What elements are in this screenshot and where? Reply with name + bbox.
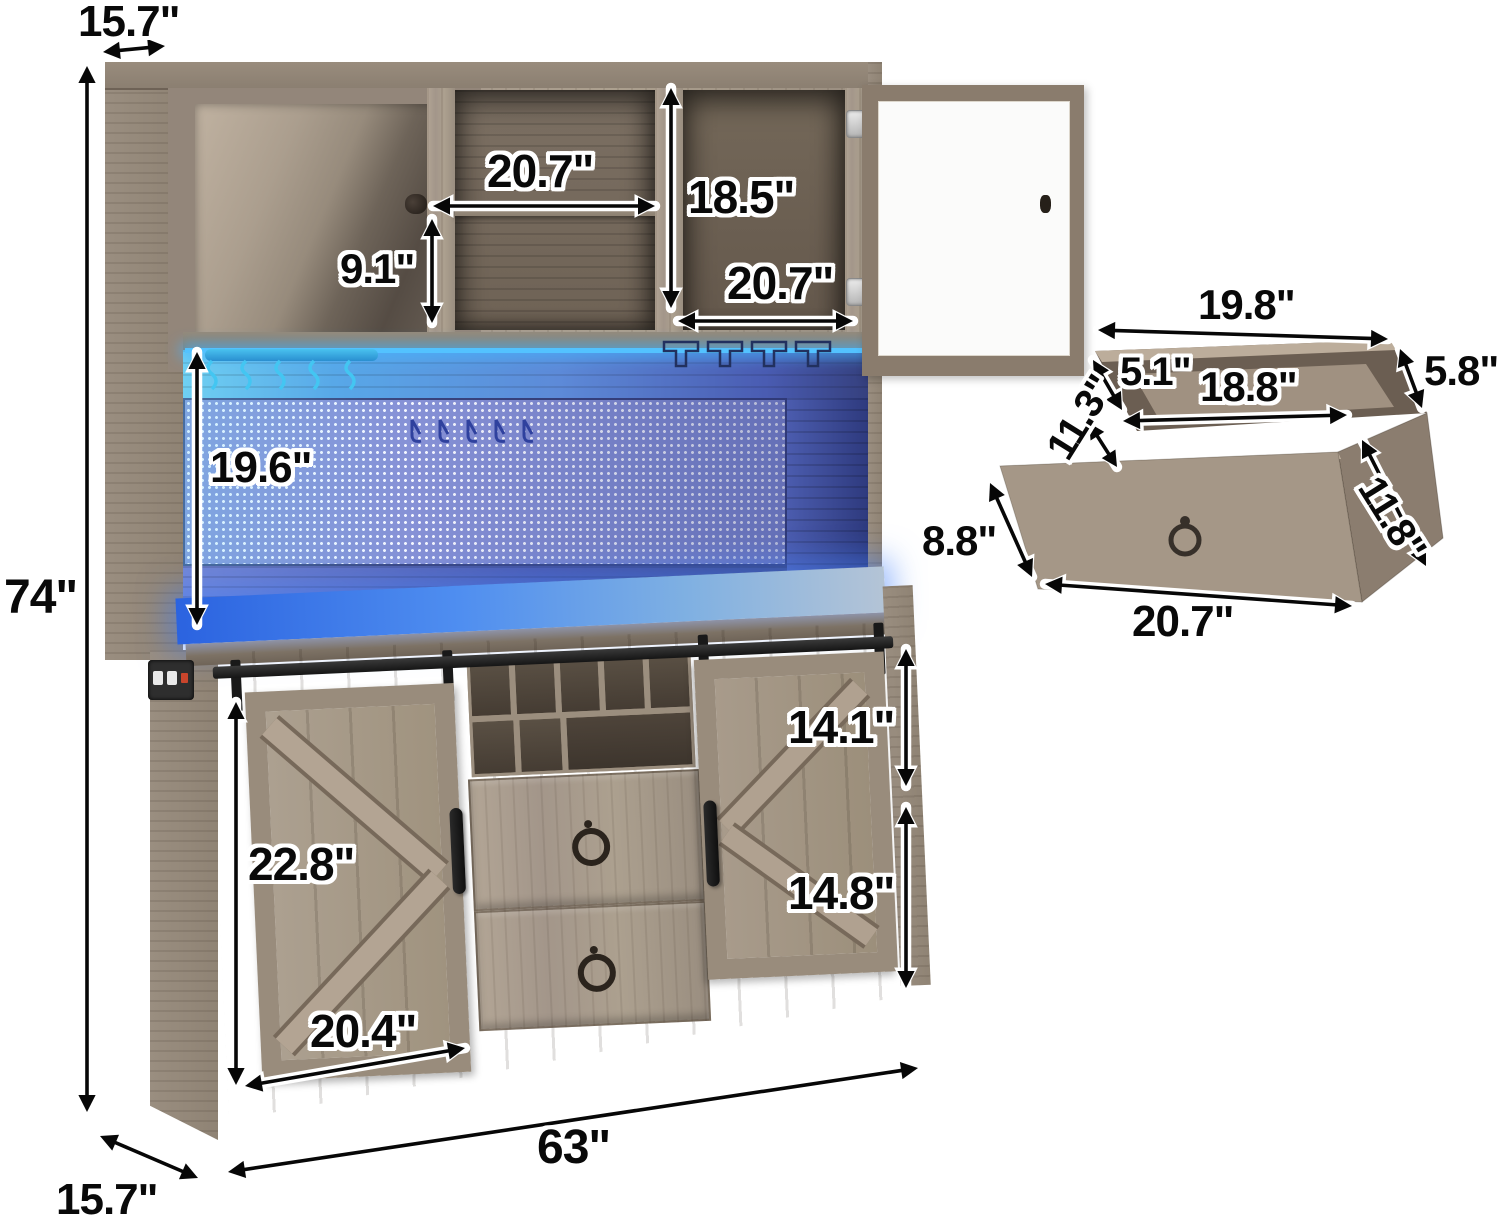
dim-label-right-cabinet-width: 20.7" — [727, 260, 833, 306]
dimension-arrow — [1098, 330, 1388, 339]
glass-door-knob — [405, 194, 427, 214]
dim-label-middle-shelf-width: 20.7" — [487, 148, 593, 194]
dimension-arrow — [78, 1095, 95, 1112]
dimension-arrow — [996, 496, 1027, 564]
dimension-arrow — [1121, 409, 1144, 433]
dim-label-upper-cabinet-height: 18.5" — [688, 174, 794, 220]
product-diagram-canvas: 15.7" 74" 20.7" 18.5" 9.1" 20.7" 19.6" 2… — [0, 0, 1500, 1220]
drawer-front-panel — [1000, 452, 1362, 602]
hutch-top-panel — [105, 62, 882, 90]
dimension-arrow — [1112, 330, 1374, 338]
dimension-arrow — [100, 1135, 119, 1151]
dimension-arrow — [1334, 596, 1352, 613]
drawer-inset-ring-pull — [1171, 526, 1199, 554]
dimension-arrow — [1017, 558, 1033, 577]
drawer-inset-ring-knob — [1180, 516, 1190, 526]
dimension-arrow — [1405, 362, 1417, 395]
dimension-arrow — [988, 481, 1010, 507]
dimension-arrow — [1362, 440, 1377, 459]
dim-label-height: 74" — [4, 574, 77, 622]
dimension-arrow — [75, 1092, 99, 1115]
dimension-arrow — [1123, 412, 1140, 429]
dim-label-base-depth: 15.7" — [56, 1178, 158, 1220]
dimension-arrow — [1326, 404, 1349, 428]
outlet-socket — [153, 671, 163, 685]
dimension-arrow — [1123, 415, 1347, 421]
outlet-usb-switch — [181, 673, 188, 683]
dim-label-barn-door-width: 20.4" — [310, 1008, 416, 1054]
dim-label-drawer-front-height: 8.8" — [922, 520, 996, 562]
dim-label-width: 63" — [537, 1124, 610, 1172]
dimension-arrow — [226, 1157, 251, 1180]
dimension-arrow — [1400, 349, 1422, 408]
dimension-arrow — [989, 483, 1005, 502]
dimension-arrow — [103, 46, 165, 52]
dimension-arrow — [179, 1163, 198, 1179]
upper-right-partition — [655, 88, 683, 350]
dimension-arrow — [1096, 319, 1119, 343]
dimension-arrow — [1097, 445, 1118, 469]
dim-label-drawer-top-width: 19.8" — [1198, 284, 1295, 326]
dimension-arrow — [174, 1159, 200, 1181]
power-outlet-strip — [148, 660, 194, 700]
open-door-glass-pane — [878, 101, 1070, 356]
drawer-front-top-edge — [1000, 452, 1341, 474]
dimension-arrow — [1013, 553, 1035, 579]
glass-pane-reflection — [195, 104, 454, 348]
dimension-arrow — [1096, 434, 1110, 457]
dim-label-barn-door-height: 22.8" — [248, 841, 354, 887]
upper-middle-partition — [427, 88, 455, 350]
upper-middle-shelf — [455, 202, 655, 216]
dimension-arrow — [78, 66, 95, 83]
dimension-arrow — [1371, 330, 1388, 347]
dimension-arrow — [1396, 347, 1418, 373]
dim-label-drawer-side-depth: 11.8" — [1351, 470, 1432, 567]
dim-label-right-door-upper: 14.1" — [788, 704, 894, 750]
hook-rail — [205, 349, 378, 361]
dimension-arrow — [1408, 389, 1424, 408]
dimension-arrow — [1330, 407, 1347, 424]
dimension-arrow — [228, 1161, 246, 1178]
dim-label-drawer-front-width: 20.7" — [1132, 600, 1234, 644]
dimension-arrow — [1367, 327, 1390, 351]
dim-label-right-door-lower: 14.8" — [788, 870, 894, 916]
dimension-arrow — [1102, 449, 1117, 467]
dim-label-drawer-inner-height: 5.1" — [1120, 352, 1191, 392]
dimension-arrow — [1398, 349, 1414, 368]
dimension-arrow — [117, 47, 151, 50]
dim-label-hutch-opening-height: 19.6" — [210, 446, 312, 490]
dimension-arrow — [1361, 438, 1382, 464]
dimension-arrow — [1404, 385, 1426, 411]
dimension-arrow — [98, 1133, 124, 1155]
dimension-arrow — [1043, 574, 1067, 598]
dimension-arrow — [1137, 415, 1333, 420]
dimension-arrow — [1098, 322, 1115, 339]
open-glass-door — [862, 85, 1084, 376]
outlet-socket — [167, 671, 177, 685]
dim-label-middle-shelf-height: 9.1" — [340, 248, 414, 290]
dim-label-drawer-side-height: 5.8" — [1424, 350, 1498, 392]
dimension-arrow — [1045, 577, 1063, 594]
dim-label-drawer-inner-width: 18.8" — [1200, 366, 1297, 408]
dim-label-drawer-inner-depth: 11.3" — [1040, 369, 1121, 466]
dimension-arrow — [1331, 593, 1355, 617]
dim-label-top-depth: 15.7" — [78, 0, 180, 44]
dimension-arrow — [75, 64, 99, 87]
open-door-knob — [1040, 195, 1051, 213]
